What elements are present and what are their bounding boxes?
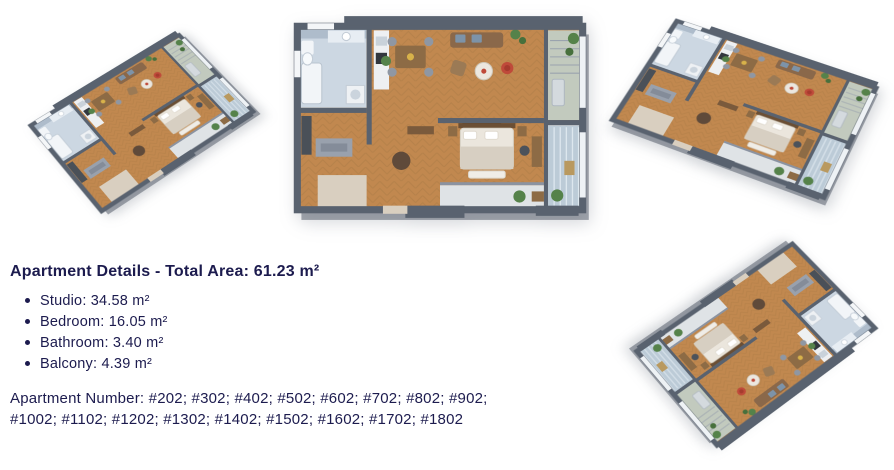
details-list: Studio: 34.58 m² Bedroom: 16.05 m² Bathr… [10, 290, 590, 374]
detail-item-bedroom: Bedroom: 16.05 m² [10, 311, 590, 332]
detail-item-label: Studio: 34.58 m² [40, 293, 150, 309]
bullet-icon [25, 319, 30, 324]
bullet-icon [25, 298, 30, 303]
floorplan-isometric-bottom [625, 234, 888, 458]
details-heading: Apartment Details - Total Area: 61.23 m² [10, 263, 590, 281]
apartment-numbers-line2: #1002; #1102; #1202; #1302; #1402; #1502… [10, 409, 590, 430]
detail-item-label: Bedroom: 16.05 m² [40, 314, 168, 330]
bullet-icon [25, 340, 30, 345]
detail-item-studio: Studio: 34.58 m² [10, 290, 590, 311]
page: Apartment Details - Total Area: 61.23 m²… [0, 0, 894, 470]
apartment-details: Apartment Details - Total Area: 61.23 m²… [10, 263, 590, 430]
bullet-icon [25, 361, 30, 366]
detail-item-balcony: Balcony: 4.39 m² [10, 353, 590, 374]
detail-item-label: Balcony: 4.39 m² [40, 356, 152, 372]
floorplan-isometric-left [19, 25, 264, 221]
detail-item-bathroom: Bathroom: 3.40 m² [10, 332, 590, 353]
apartment-numbers: Apartment Number: #202; #302; #402; #502… [10, 388, 590, 430]
detail-item-label: Bathroom: 3.40 m² [40, 335, 163, 351]
floorplan-top-down-center [287, 10, 593, 224]
apartment-numbers-line1: Apartment Number: #202; #302; #402; #502… [10, 388, 590, 409]
floorplan-isometric-right [600, 11, 888, 210]
